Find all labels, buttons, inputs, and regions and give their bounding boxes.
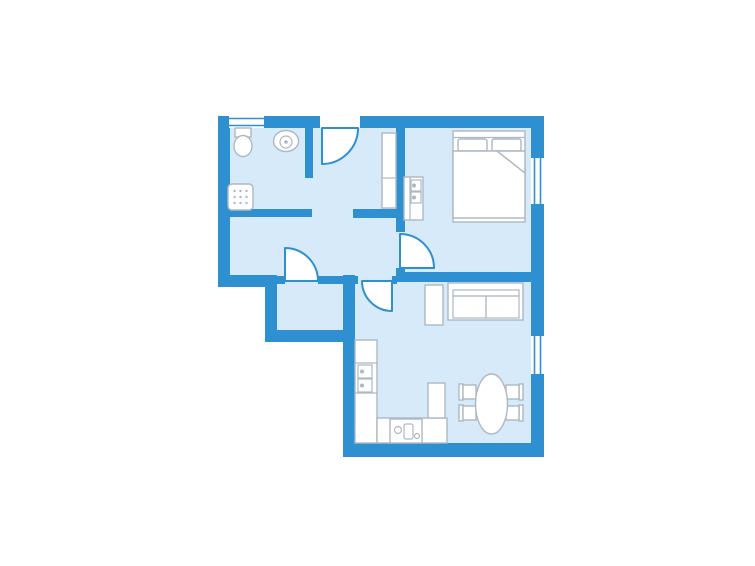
- sofa: [448, 283, 523, 320]
- stove: [390, 419, 422, 443]
- dining-chair-bottom-right: [506, 405, 523, 421]
- shower: [228, 184, 253, 210]
- floor-plan-page: [0, 0, 755, 566]
- wall-bathroom-partition: [305, 128, 313, 178]
- dining-chair-top-right: [506, 384, 523, 400]
- wall-top: [218, 116, 544, 128]
- side-table: [425, 285, 443, 325]
- dining-chair-bottom-left: [459, 405, 476, 421]
- entry-opening: [320, 114, 360, 128]
- wardrobe: [382, 133, 396, 208]
- wall-hall-band-a: [277, 276, 285, 284]
- wall-bottom: [343, 443, 544, 457]
- wall-bedroom-south: [396, 272, 531, 282]
- double-bed: [453, 131, 525, 222]
- pillow-right: [492, 139, 521, 151]
- floor-plan-canvas: [0, 0, 755, 566]
- wall-vestibule-bottom: [265, 330, 355, 342]
- living-room-window: [531, 336, 544, 374]
- bedroom-window: [531, 158, 544, 204]
- washbasin: [274, 131, 299, 152]
- bathroom-window: [229, 116, 264, 128]
- dining-chair-top-left: [459, 384, 476, 400]
- wall-hall-band-b: [318, 276, 358, 284]
- wall-hall-south-upper: [353, 209, 397, 218]
- dining-table-oval: [476, 374, 508, 434]
- toilet: [234, 128, 252, 157]
- tall-cabinet: [428, 383, 445, 418]
- vanity-unit: [404, 177, 423, 220]
- wall-living-left: [343, 275, 355, 457]
- pillow-left: [458, 139, 487, 151]
